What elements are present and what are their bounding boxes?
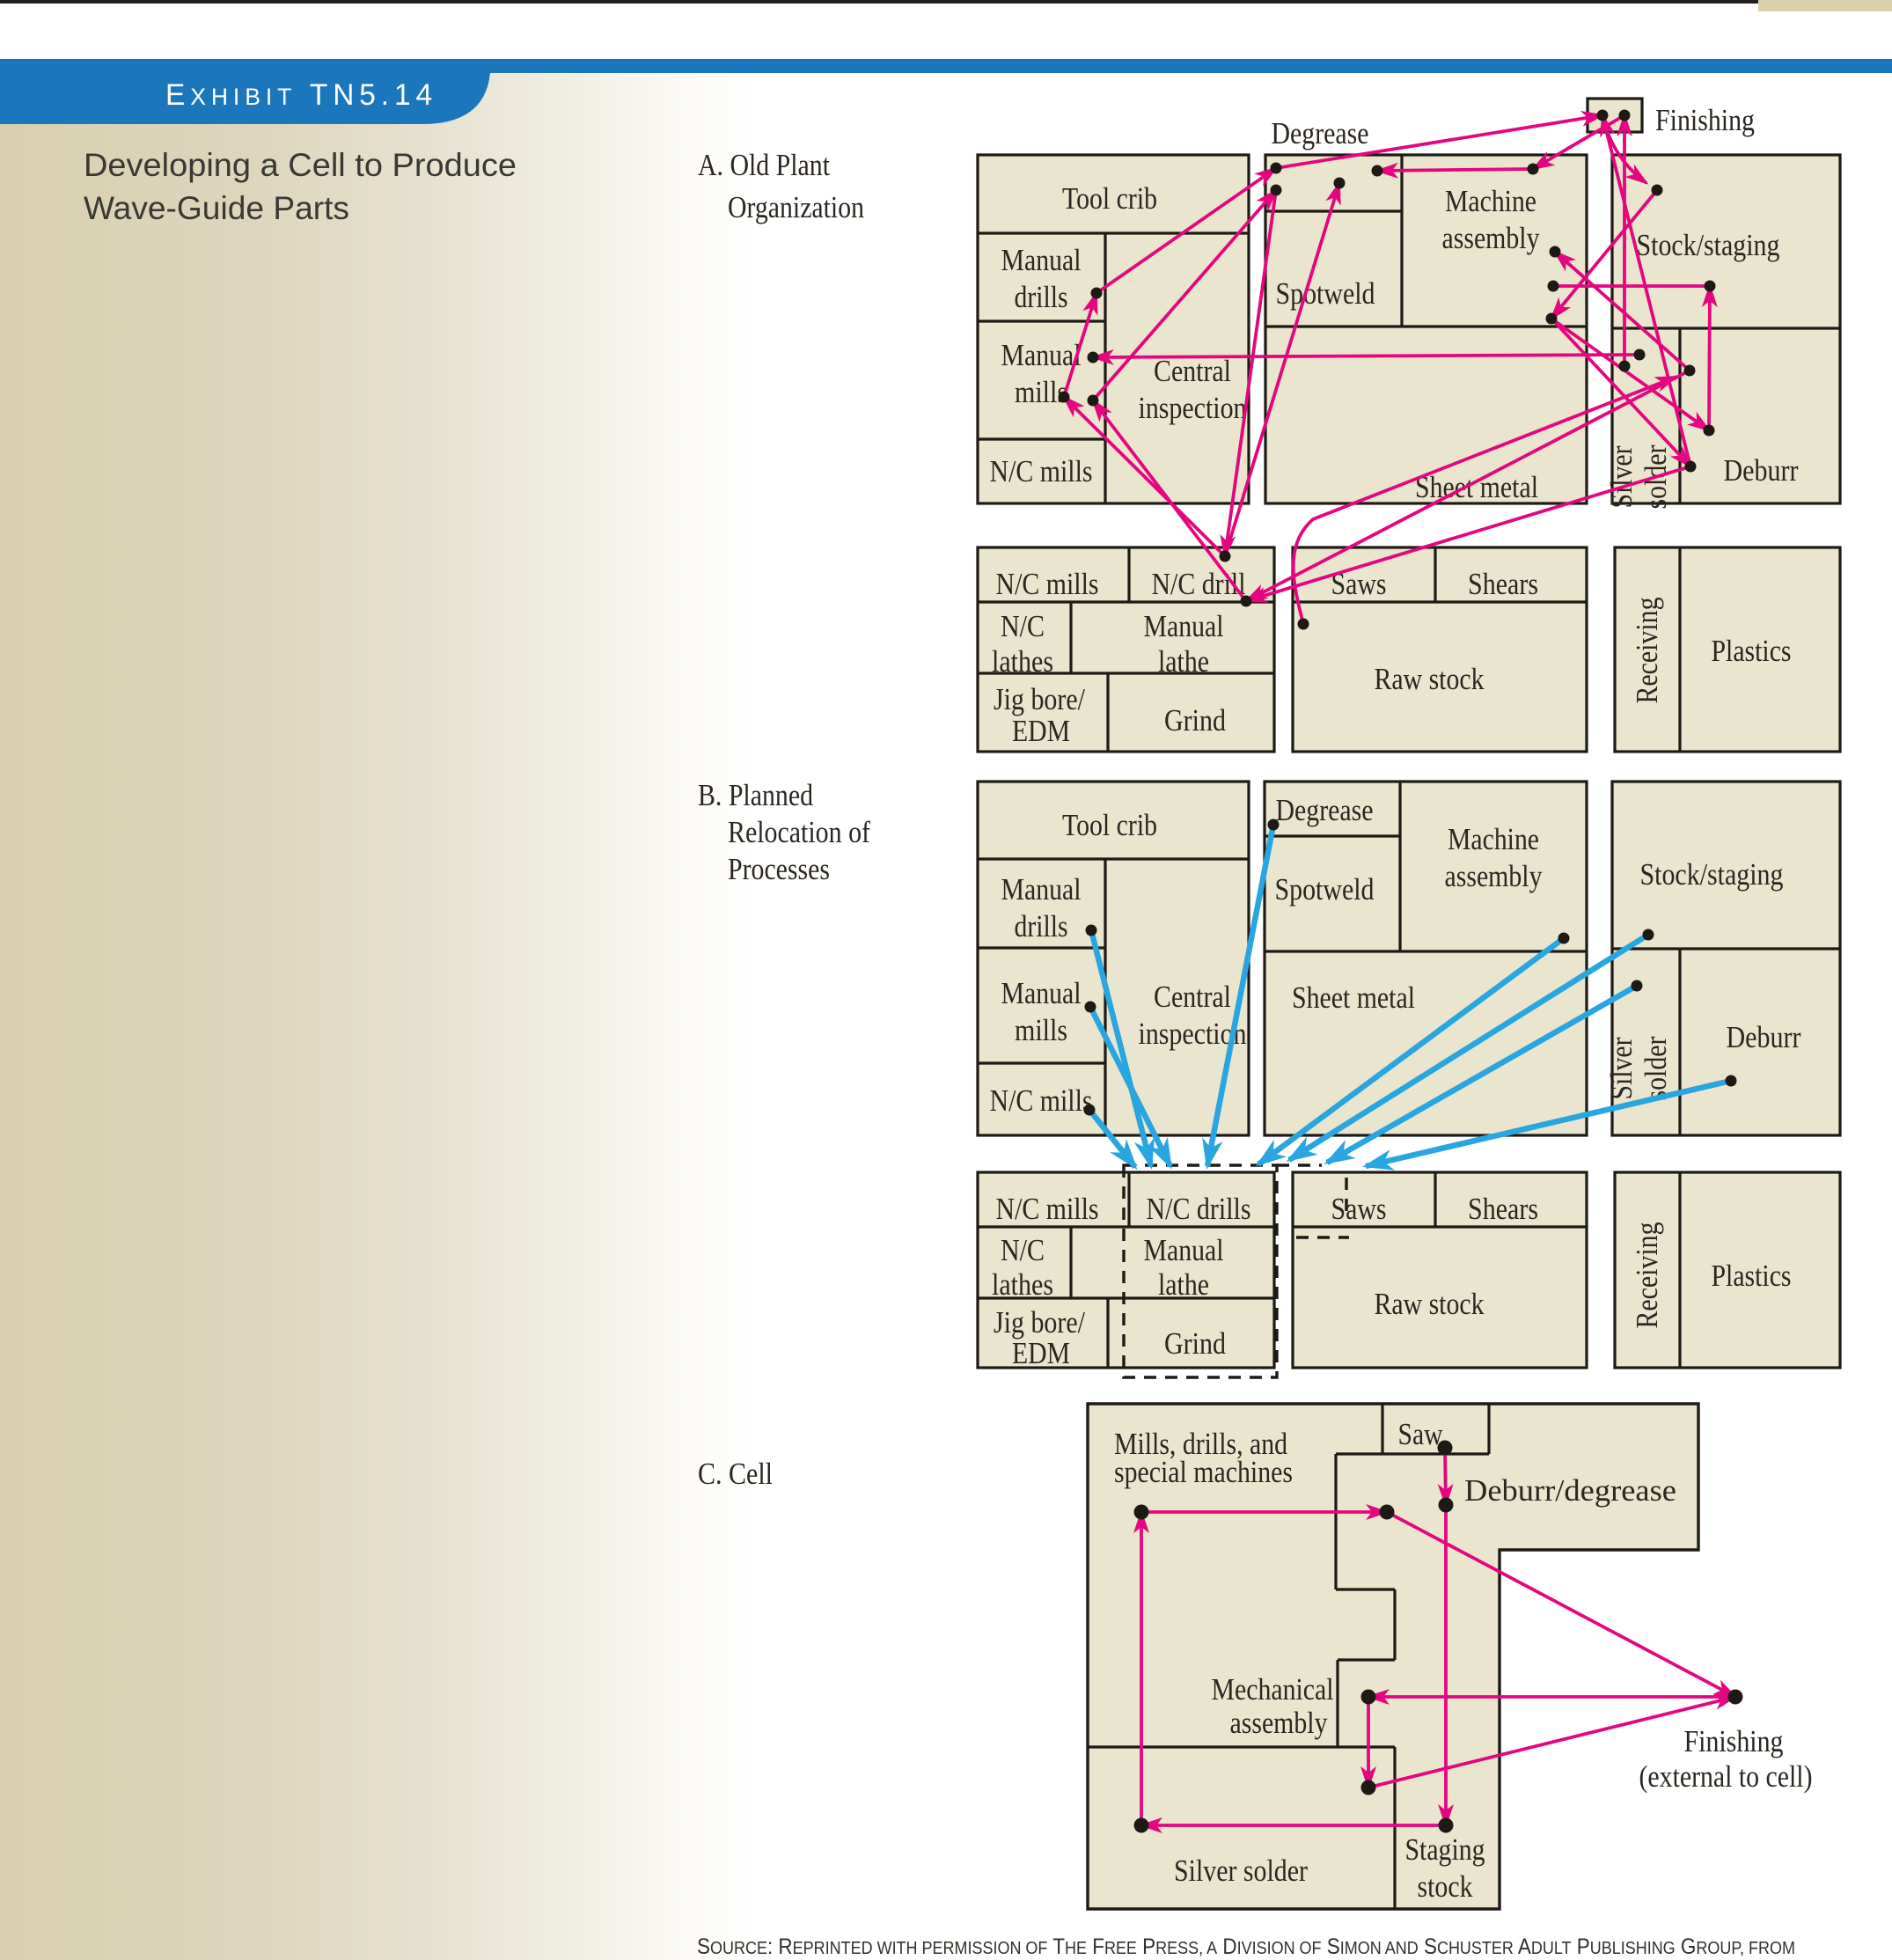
svg-text:Deburr/degrease: Deburr/degrease [1464,1473,1676,1508]
svg-text:Relocation of: Relocation of [728,815,870,849]
svg-text:mills: mills [1015,1013,1067,1047]
svg-text:drills: drills [1015,280,1068,314]
svg-text:solder: solder [1639,1036,1673,1100]
svg-text:Silver solder: Silver solder [1174,1854,1308,1888]
svg-text:N/C: N/C [1001,609,1045,643]
svg-text:Processes: Processes [728,852,830,886]
svg-text:Organization: Organization [728,190,864,224]
svg-text:assembly: assembly [1230,1706,1328,1740]
svg-text:Machine: Machine [1448,822,1539,856]
svg-text:drills: drills [1015,909,1068,943]
svg-text:B. Planned: B. Planned [698,778,813,812]
svg-text:Plastics: Plastics [1712,634,1792,668]
svg-text:Raw stock: Raw stock [1375,662,1485,696]
svg-text:Manual: Manual [1144,609,1224,643]
svg-text:Receiving: Receiving [1630,1222,1664,1329]
svg-text:Spotweld: Spotweld [1276,276,1375,311]
svg-text:Stock/staging: Stock/staging [1640,857,1784,892]
svg-text:Staging: Staging [1405,1832,1485,1867]
svg-text:Tool crib: Tool crib [1062,181,1157,216]
svg-text:A. Old Plant: A. Old Plant [698,148,830,182]
svg-text:EDM: EDM [1012,1336,1070,1370]
svg-text:N/C: N/C [1001,1233,1045,1267]
svg-text:Jig bore/: Jig bore/ [994,682,1085,716]
svg-text:Stock/staging: Stock/staging [1637,228,1780,262]
svg-text:Shears: Shears [1468,567,1538,601]
svg-text:SOURCE: REPRINTED WITH PERMISS: SOURCE: REPRINTED WITH PERMISSION OF THE… [697,1934,1795,1959]
svg-text:Spotweld: Spotweld [1275,872,1375,907]
svg-text:assembly: assembly [1442,221,1540,255]
svg-text:assembly: assembly [1445,859,1543,893]
svg-text:Manual: Manual [1001,872,1082,907]
svg-text:lathe: lathe [1158,644,1209,679]
svg-text:C. Cell: C. Cell [698,1457,773,1491]
svg-text:N/C mills: N/C mills [996,567,1099,601]
svg-text:Developing a Cell to Produce: Developing a Cell to Produce [84,146,517,183]
svg-text:stock: stock [1418,1869,1473,1904]
svg-text:Silver: Silver [1604,1037,1639,1099]
svg-text:Machine: Machine [1445,184,1536,218]
svg-text:N/C mills: N/C mills [990,454,1093,488]
svg-text:Saw: Saw [1398,1417,1444,1451]
svg-text:(external to cell): (external to cell) [1639,1759,1813,1794]
svg-text:Finishing: Finishing [1684,1724,1784,1758]
svg-text:Manual: Manual [1001,338,1082,372]
svg-text:Grind: Grind [1164,1326,1226,1361]
svg-text:Sheet metal: Sheet metal [1415,470,1538,504]
svg-text:EDM: EDM [1012,714,1070,748]
svg-text:Shears: Shears [1468,1192,1538,1226]
svg-text:mills: mills [1015,375,1067,409]
svg-text:Receiving: Receiving [1630,598,1664,704]
svg-text:N/C mills: N/C mills [990,1083,1093,1118]
svg-text:Manual: Manual [1001,976,1082,1010]
svg-text:Wave-Guide Parts: Wave-Guide Parts [84,189,349,226]
svg-text:Degrease: Degrease [1272,116,1369,150]
svg-text:special machines: special machines [1114,1455,1293,1489]
svg-text:EXHIBIT TN5.14: EXHIBIT TN5.14 [165,78,437,112]
svg-text:N/C drills: N/C drills [1147,1192,1251,1226]
svg-text:Central: Central [1154,354,1231,388]
svg-text:Deburr: Deburr [1727,1020,1801,1054]
svg-text:Manual: Manual [1001,243,1082,277]
svg-text:Degrease: Degrease [1276,793,1374,827]
svg-text:N/C mills: N/C mills [996,1192,1099,1226]
svg-text:Tool crib: Tool crib [1062,808,1157,842]
svg-text:Manual: Manual [1144,1233,1224,1267]
svg-text:Jig bore/: Jig bore/ [994,1305,1085,1340]
svg-text:Central: Central [1154,980,1231,1014]
svg-text:Grind: Grind [1164,703,1226,738]
svg-text:lathe: lathe [1158,1267,1209,1302]
svg-text:Raw stock: Raw stock [1375,1287,1485,1321]
svg-text:lathes: lathes [992,644,1053,679]
svg-text:Mechanical: Mechanical [1212,1672,1334,1707]
svg-text:Deburr: Deburr [1724,453,1799,488]
svg-text:inspection: inspection [1139,391,1247,425]
svg-text:Silver: Silver [1604,445,1639,508]
svg-text:Finishing: Finishing [1655,103,1755,137]
svg-text:Sheet metal: Sheet metal [1292,980,1415,1015]
svg-text:Plastics: Plastics [1712,1259,1792,1293]
svg-text:lathes: lathes [992,1267,1053,1302]
svg-text:Saws: Saws [1331,1192,1387,1226]
